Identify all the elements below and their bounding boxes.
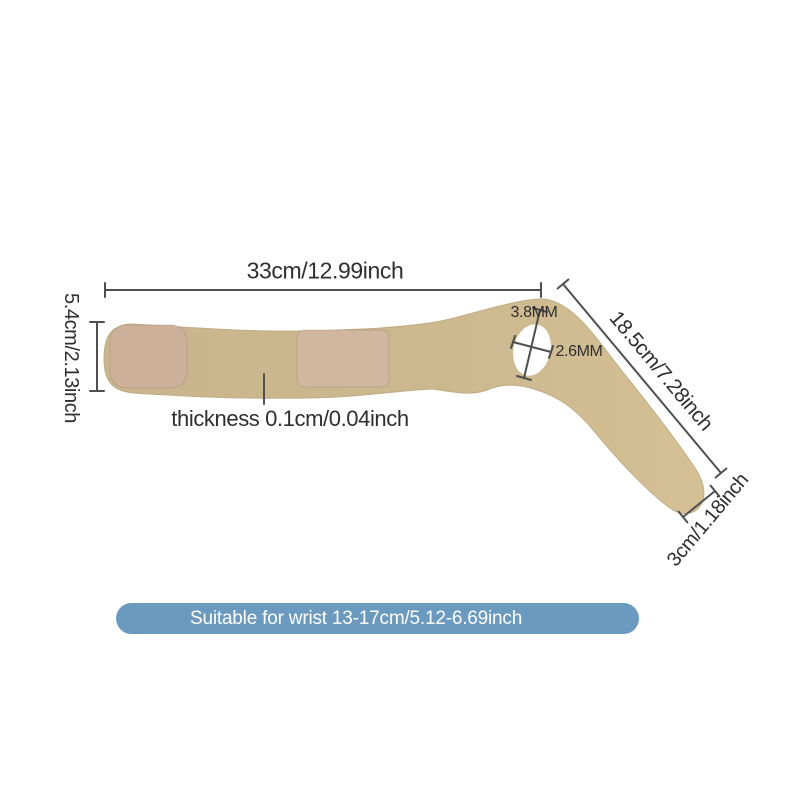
velcro-patch-middle bbox=[297, 330, 389, 387]
label-hole-minor: 2.6MM bbox=[556, 343, 603, 361]
dim-line-band-width bbox=[90, 322, 104, 391]
product-dimension-diagram: 33cm/12.99inch 5.4cm/2.13inch thickness … bbox=[0, 0, 800, 800]
label-total-length: 33cm/12.99inch bbox=[247, 258, 404, 283]
label-thickness: thickness 0.1cm/0.04inch bbox=[171, 407, 408, 431]
velcro-patch-left bbox=[110, 325, 187, 388]
dim-line-total-length bbox=[105, 283, 541, 297]
wrist-size-banner: Suitable for wrist 13-17cm/5.12-6.69inch bbox=[116, 603, 639, 634]
label-hole-major: 3.8MM bbox=[511, 304, 558, 322]
label-band-width: 5.4cm/2.13inch bbox=[60, 293, 82, 423]
wrist-size-banner-label: Suitable for wrist 13-17cm/5.12-6.69inch bbox=[190, 603, 522, 634]
